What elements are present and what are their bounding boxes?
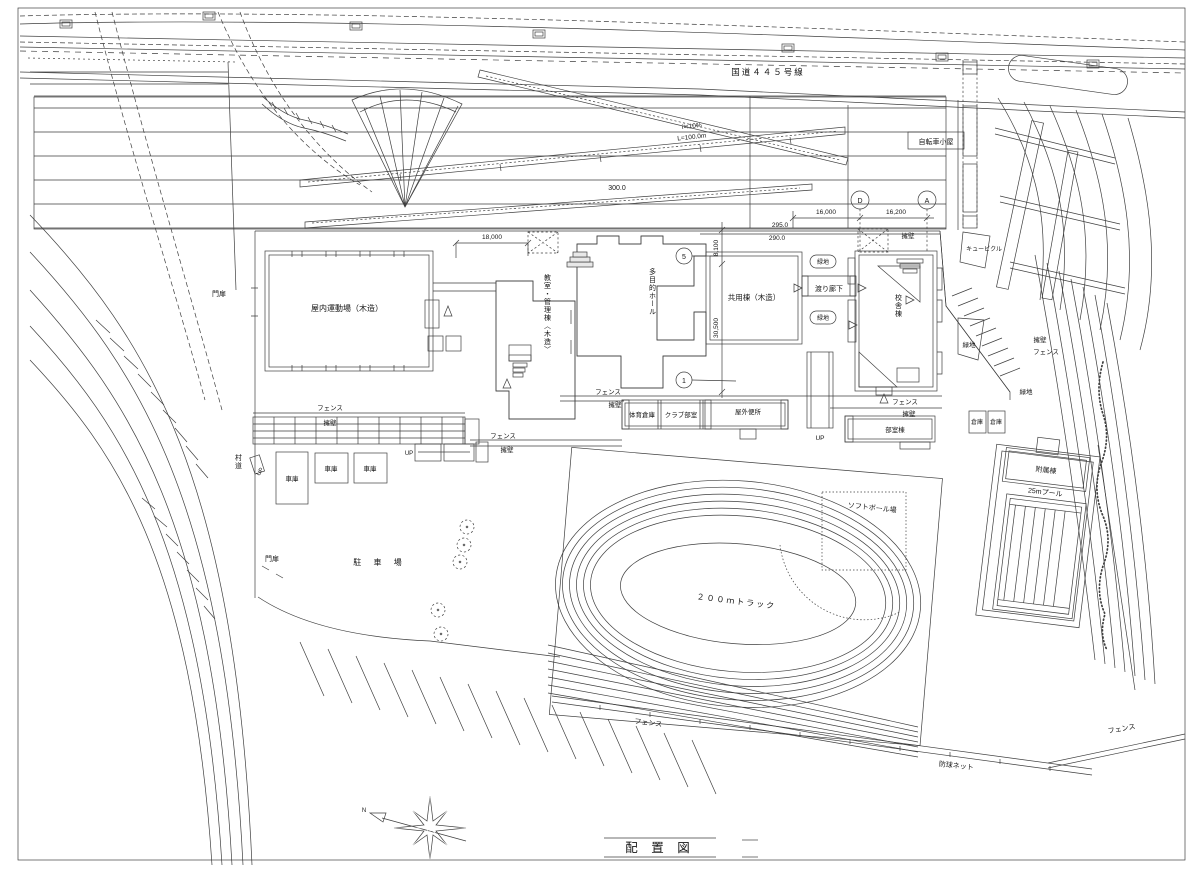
demolition-box-west: [528, 232, 558, 253]
school-building: 校舎棟: [848, 229, 942, 403]
dim-30500-label: 30,500: [713, 318, 720, 338]
route-445-road: 国道４４５号線: [20, 12, 1185, 118]
dim-18000-label: 18,000: [482, 234, 502, 241]
site-boundaries: 門扉 擁壁 キュービクル 緑地 緑地 擁壁 フェンス フェンス 擁壁 フェンス …: [212, 231, 1059, 657]
multipurpose-hall-label: 多目的ホール: [649, 267, 657, 316]
north-label: N: [362, 808, 366, 814]
gym-storage-label: 体育倉庫: [629, 410, 656, 419]
site-plan-page: 国道４４５号線 i≒10% L=100.0m 300.0 自転車小屋: [0, 0, 1200, 870]
bicycle-shed-label: 自転車小屋: [919, 137, 954, 146]
gymnasium: 屋内運動場（木造）: [265, 251, 461, 371]
wall-label-ne: 擁壁: [902, 231, 916, 240]
entrance-marker-icon: [503, 379, 511, 388]
dim-8100-label: 8,100: [713, 239, 720, 256]
slope-fan: [262, 89, 462, 207]
green-label-4: 緑地: [817, 314, 829, 322]
bicycle-shed: 自転車小屋: [908, 132, 964, 149]
grid-bubble-d: D: [857, 198, 862, 205]
classroom-admin-building: 教室・管理棟〈木造〉: [496, 273, 575, 419]
storage-label-1: 倉庫: [971, 418, 983, 426]
dim-16200-label: 16,200: [886, 209, 906, 216]
elevation-295-label: 295.0: [772, 222, 789, 229]
ramp-arrow-icon: [906, 296, 914, 304]
stair-icon-hall: [567, 252, 593, 267]
school-building-label: 校舎棟: [895, 293, 903, 318]
gate-label-west: 門扉: [212, 289, 226, 298]
common-building-label: 共用棟（木造）: [728, 292, 781, 302]
access-ramp-upper: [478, 70, 848, 165]
entrance-marker-icon: [880, 394, 888, 403]
storage-sheds: 倉庫 倉庫: [969, 411, 1005, 433]
dim-18000: 18,000: [453, 234, 531, 258]
elevation-290-label: 290.0: [769, 235, 786, 242]
green-label-3: 緑地: [817, 258, 829, 266]
garage-label-2: 車庫: [325, 464, 339, 473]
outbuilding-strip: 体育倉庫 クラブ部室 屋外便所 UP 部室棟 倉庫 倉庫: [622, 352, 1005, 449]
grid-bubble-5: 5: [682, 254, 686, 261]
west-retaining-wall: フェンス 擁壁: [253, 404, 479, 444]
wall-label-w2: 擁壁: [501, 445, 515, 454]
wall-label-e: 擁壁: [1034, 335, 1048, 344]
compass-rose-icon: N: [362, 796, 466, 860]
up-label-2: UP: [405, 451, 413, 457]
site-plan-drawing: 国道４４５号線 i≒10% L=100.0m 300.0 自転車小屋: [0, 0, 1200, 870]
fence-label-se: フェンス: [1107, 723, 1136, 736]
garage-label-3: 車庫: [364, 464, 378, 473]
covered-walkway-label: 渡り廊下: [815, 284, 843, 293]
sprint-lanes: [548, 645, 918, 757]
storage-label-2: 倉庫: [990, 418, 1002, 426]
upper-parking-area: i≒10% L=100.0m 300.0 自転車小屋: [30, 60, 977, 230]
village-road-label: 村道: [235, 453, 243, 470]
wall-label-m1: 擁壁: [609, 400, 623, 409]
pool-block: 附属棟 25mプール: [976, 432, 1102, 627]
green-areas-east: 緑地 緑地 擁壁 フェンス: [958, 318, 1059, 396]
cubicle-label: キュービクル: [966, 245, 1002, 253]
title-block: 配 置 図: [604, 838, 758, 857]
south-gate: 門扉: [262, 554, 283, 578]
route-445-label: 国道４４５号線: [731, 67, 805, 77]
parking-lot: UP UP 車庫 車庫 車庫 駐 車 場: [250, 442, 488, 641]
west-gate: 門扉: [212, 288, 258, 316]
fence-label-w2: フェンス: [490, 432, 516, 440]
annex-label: 附属棟: [1035, 464, 1057, 475]
garage-label-1: 車庫: [286, 474, 300, 483]
track-label: ２００ｍトラック: [696, 592, 777, 611]
south-edge: フェンス 防球ネット フェンス: [300, 642, 1185, 794]
classroom-admin-label: 教室・管理棟〈木造〉: [544, 273, 552, 354]
clubhouse-label: 部室棟: [885, 425, 905, 434]
green-label-1: 緑地: [963, 340, 977, 349]
garages: 車庫 車庫 車庫: [276, 452, 387, 504]
fence-label-m1: フェンス: [595, 388, 621, 396]
track-field: ソフトボール場 ２００ｍトラック: [544, 447, 942, 757]
fence-label-w: フェンス: [317, 404, 343, 412]
access-ramp-lower: [305, 184, 812, 228]
parking-lot-label: 駐 車 場: [353, 557, 406, 567]
stair-icon-admin: [513, 363, 527, 377]
fence-label-e: フェンス: [1033, 348, 1059, 356]
clubhouse-building: 部室棟: [845, 416, 935, 449]
gymnasium-label: 屋内運動場（木造）: [311, 303, 383, 313]
entrance-marker-icon: [444, 306, 452, 316]
west-retaining-wall-2: フェンス 擁壁: [470, 432, 622, 454]
wall-label-m2: 擁壁: [903, 409, 917, 418]
fence-label-m2: フェンス: [892, 398, 918, 406]
village-road: 村道: [30, 12, 372, 865]
stairs-road-small: UP: [250, 455, 266, 477]
grid-bubble-1: 1: [682, 378, 686, 385]
trees: [431, 520, 474, 641]
multipurpose-hall: 多目的ホール: [577, 236, 706, 388]
ball-net-label: 防球ネット: [938, 759, 974, 772]
up-label-1: UP: [815, 435, 824, 442]
club-room-label: クラブ部室: [665, 410, 698, 419]
stairs-west-small: UP: [405, 442, 488, 462]
fence-label-south: フェンス: [634, 717, 663, 728]
wall-label-w: 擁壁: [324, 418, 338, 427]
grid-bubble-a: A: [925, 198, 930, 205]
cubicle-pad: キュービクル: [960, 232, 1002, 268]
toilet-label: 屋外便所: [735, 407, 762, 416]
elevation-300-label: 300.0: [608, 185, 626, 192]
green-label-2: 緑地: [1020, 387, 1034, 396]
gate-label-south: 門扉: [265, 554, 279, 563]
main-stairs: UP: [807, 352, 833, 442]
dim-16000-label: 16,000: [816, 209, 836, 216]
drawing-frame: [18, 8, 1185, 860]
drawing-title: 配 置 図: [625, 841, 694, 855]
dim-16000-16200: 16,000 16,200 D A: [790, 191, 936, 251]
slope-stairs-strips: [963, 60, 977, 228]
gym-link-corridor: [433, 283, 496, 291]
